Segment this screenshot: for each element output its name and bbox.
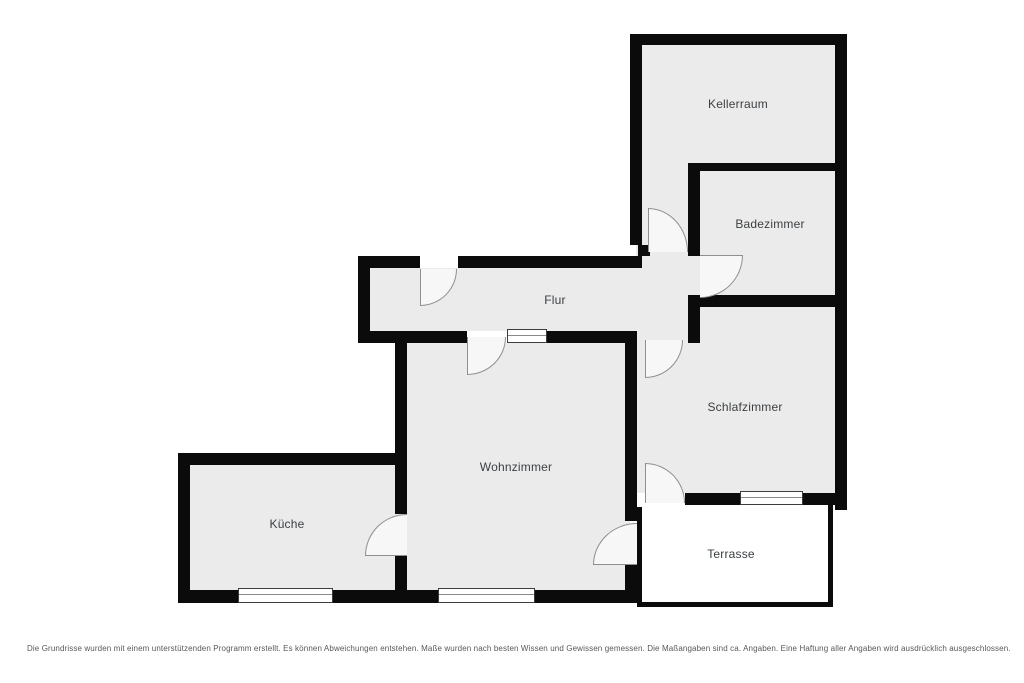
wall-schlafzimmer-top [690,295,846,307]
room-floor-flur [366,268,690,331]
wall-kellerraum-left [630,34,642,245]
wall-kueche-top [178,453,407,465]
room-label-kueche: Küche [269,517,304,531]
wall-flur-top-right [458,256,642,268]
wall-bottom-c [535,590,637,603]
room-label-badezimmer: Badezimmer [735,217,804,231]
wall-schlafzimmer-bottom-a [685,493,740,505]
room-label-terrasse: Terrasse [707,547,755,561]
window-schlafzimmer [740,491,803,505]
wall-kellerraum-top [630,34,846,45]
wall-flur-left [358,256,370,343]
wall-wohnzimmer-schlafzimmer-upper [625,331,637,521]
wall-bottom-a [178,590,238,603]
room-label-schlafzimmer: Schlafzimmer [707,400,782,414]
window-flur-wohnzimmer [507,329,547,343]
window-kueche [238,588,333,603]
disclaimer-text: Die Grundrisse wurden mit einem unterstü… [27,644,1017,653]
wall-flur-bottom-a [358,331,467,343]
room-label-kellerraum: Kellerraum [708,97,768,111]
wall-flur-bottom-b [547,331,637,343]
wall-wohnzimmer-left-upper [395,331,407,514]
wall-right-outer [835,34,847,510]
floor-plan: Kellerraum Badezimmer Flur Schlafzimmer … [0,0,1024,683]
wall-kueche-left [178,453,190,603]
wall-badezimmer-left-upper [688,163,700,256]
wall-schlafzimmer-bottom-b [803,493,846,505]
room-label-wohnzimmer: Wohnzimmer [480,460,552,474]
wall-bottom-b [333,590,438,603]
wall-badezimmer-top [691,163,835,171]
room-label-flur: Flur [544,293,565,307]
window-wohnzimmer [438,588,535,603]
